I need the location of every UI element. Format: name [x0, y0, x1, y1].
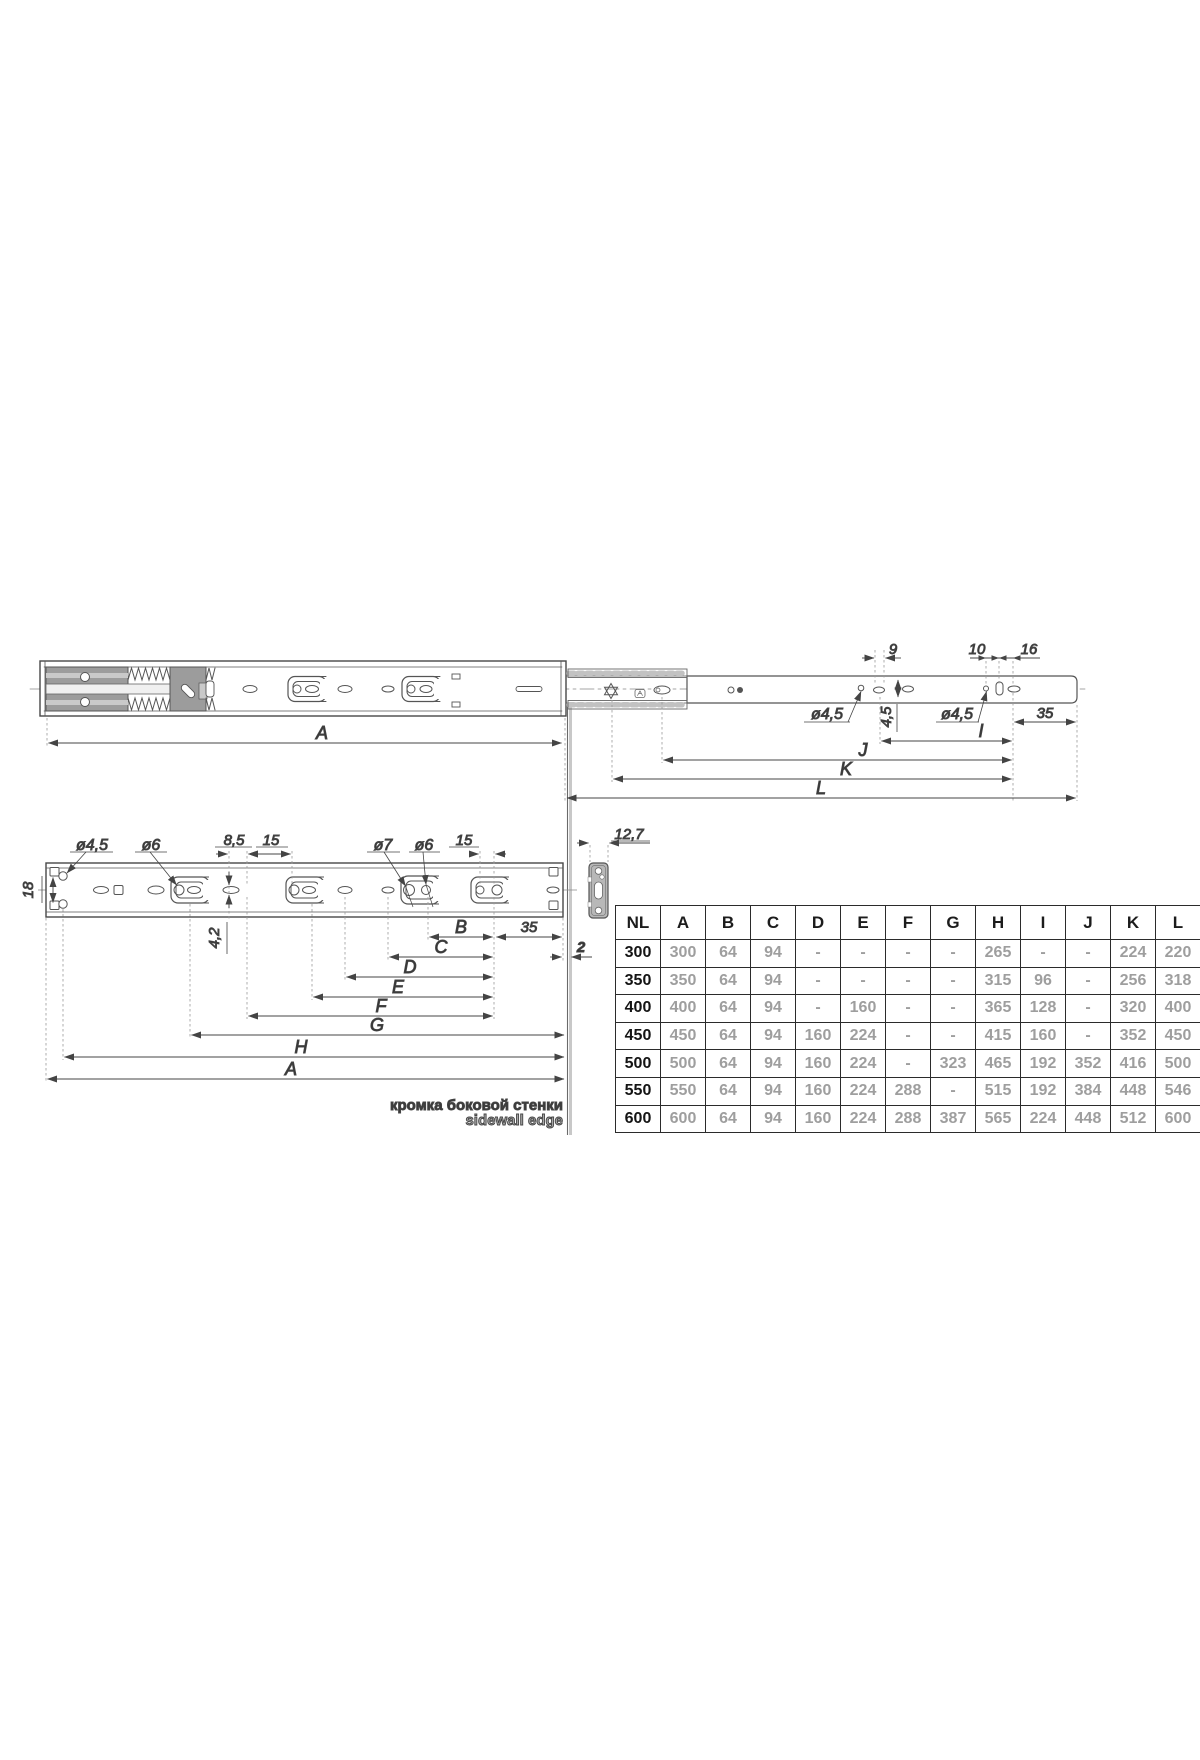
dim-label-dia45-side: ø4,5 — [76, 837, 108, 854]
value-cell: - — [931, 995, 976, 1023]
value-cell: 415 — [976, 1022, 1021, 1050]
value-cell: 323 — [931, 1050, 976, 1078]
value-cell: - — [1066, 967, 1111, 995]
column-header: B — [706, 906, 751, 940]
column-header: C — [751, 906, 796, 940]
value-cell: 96 — [1021, 967, 1066, 995]
value-cell: 128 — [1021, 995, 1066, 1023]
value-cell: - — [796, 995, 841, 1023]
column-header: E — [841, 906, 886, 940]
column-header: K — [1111, 906, 1156, 940]
value-cell: 224 — [841, 1077, 886, 1105]
table-row: 6006006494160224288387565224448512600 — [616, 1105, 1200, 1133]
value-cell: 352 — [1111, 1022, 1156, 1050]
value-cell: - — [1066, 1022, 1111, 1050]
top-view-drawing — [30, 661, 1085, 716]
note-sidewall-en: sidewall edge — [465, 1112, 563, 1129]
dim-label-35-side: 35 — [521, 919, 538, 936]
nl-cell: 350 — [616, 967, 661, 995]
value-cell: 94 — [751, 940, 796, 968]
value-cell: 64 — [706, 1022, 751, 1050]
dim-label-A-side: A — [284, 1059, 297, 1079]
value-cell: 192 — [1021, 1077, 1066, 1105]
value-cell: 315 — [976, 967, 1021, 995]
dim-label-C: C — [435, 937, 449, 957]
value-cell: 500 — [1156, 1050, 1200, 1078]
value-cell: 64 — [706, 940, 751, 968]
value-cell: 318 — [1156, 967, 1200, 995]
value-cell: 160 — [796, 1105, 841, 1133]
value-cell: - — [886, 1050, 931, 1078]
value-cell: 500 — [661, 1050, 706, 1078]
value-cell: 94 — [751, 1022, 796, 1050]
table-row: 4504506494160224--415160-352450 — [616, 1022, 1200, 1050]
nl-cell: 400 — [616, 995, 661, 1023]
column-header: D — [796, 906, 841, 940]
dim-label-15-right: 15 — [456, 832, 473, 849]
value-cell: 64 — [706, 1050, 751, 1078]
value-cell: 64 — [706, 1077, 751, 1105]
value-cell: 220 — [1156, 940, 1200, 968]
dim-label-H: H — [295, 1037, 309, 1057]
value-cell: 400 — [1156, 995, 1200, 1023]
value-cell: 350 — [661, 967, 706, 995]
value-cell: 565 — [976, 1105, 1021, 1133]
column-header: A — [661, 906, 706, 940]
value-cell: - — [931, 1022, 976, 1050]
column-header: H — [976, 906, 1021, 940]
column-header: G — [931, 906, 976, 940]
value-cell: - — [886, 940, 931, 968]
value-cell: - — [931, 967, 976, 995]
dim-label-dia45-mid: ø4,5 — [811, 706, 843, 723]
value-cell: 450 — [1156, 1022, 1200, 1050]
value-cell: 600 — [1156, 1105, 1200, 1133]
value-cell: 515 — [976, 1077, 1021, 1105]
technical-drawing: 9 10 16 ø4,5 4,5 ø4,5 35 I J K L A — [0, 0, 1200, 1760]
value-cell: 160 — [1021, 1022, 1066, 1050]
dim-label-2: 2 — [576, 939, 586, 956]
dim-label-dia45-right: ø4,5 — [941, 706, 973, 723]
cross-section — [588, 863, 608, 918]
dim-label-B: B — [455, 917, 467, 937]
value-cell: 265 — [976, 940, 1021, 968]
dim-label-E: E — [392, 977, 405, 997]
table-header-row: NLABCDEFGHIJKL — [616, 906, 1200, 940]
value-cell: - — [796, 967, 841, 995]
dim-label-F: F — [376, 996, 388, 1016]
value-cell: 300 — [661, 940, 706, 968]
value-cell: 94 — [751, 1050, 796, 1078]
value-cell: 320 — [1111, 995, 1156, 1023]
dim-label-A-top: A — [315, 723, 328, 743]
value-cell: 160 — [796, 1050, 841, 1078]
value-cell: 600 — [661, 1105, 706, 1133]
value-cell: 64 — [706, 1105, 751, 1133]
nl-cell: 500 — [616, 1050, 661, 1078]
sidewall-edge-line — [568, 703, 571, 1135]
dim-label-K: K — [840, 759, 853, 779]
column-header: L — [1156, 906, 1200, 940]
dim-label-16: 16 — [1021, 641, 1038, 658]
nl-cell: 450 — [616, 1022, 661, 1050]
dim-label-dia6-left: ø6 — [142, 837, 161, 854]
value-cell: 160 — [796, 1022, 841, 1050]
nl-cell: 550 — [616, 1077, 661, 1105]
value-cell: - — [931, 1077, 976, 1105]
value-cell: 448 — [1066, 1105, 1111, 1133]
value-cell: 224 — [1111, 940, 1156, 968]
value-cell: - — [796, 940, 841, 968]
dim-label-I: I — [978, 721, 983, 741]
column-header: NL — [616, 906, 661, 940]
table-row: 4004006494-160--365128-320400 — [616, 995, 1200, 1023]
dim-label-10: 10 — [969, 641, 986, 658]
side-view-drawing — [38, 863, 578, 917]
dim-label-35-top: 35 — [1037, 705, 1054, 722]
value-cell: 192 — [1021, 1050, 1066, 1078]
dimensions-table: NLABCDEFGHIJKL 3003006494----265--224220… — [615, 905, 1200, 1133]
value-cell: - — [886, 967, 931, 995]
value-cell: 224 — [841, 1050, 886, 1078]
value-cell: 224 — [1021, 1105, 1066, 1133]
nl-cell: 600 — [616, 1105, 661, 1133]
nl-cell: 300 — [616, 940, 661, 968]
column-header: F — [886, 906, 931, 940]
dim-label-dia6-right: ø6 — [415, 837, 434, 854]
value-cell: - — [1066, 940, 1111, 968]
dim-label-D: D — [404, 957, 417, 977]
value-cell: 416 — [1111, 1050, 1156, 1078]
value-cell: 256 — [1111, 967, 1156, 995]
value-cell: 384 — [1066, 1077, 1111, 1105]
column-header: I — [1021, 906, 1066, 940]
dim-label-18: 18 — [20, 881, 37, 898]
dim-label-42: 4,2 — [206, 927, 223, 949]
value-cell: 288 — [886, 1077, 931, 1105]
value-cell: 465 — [976, 1050, 1021, 1078]
table-row: 5505506494160224288-515192384448546 — [616, 1077, 1200, 1105]
value-cell: 448 — [1111, 1077, 1156, 1105]
dim-label-9: 9 — [889, 641, 898, 658]
value-cell: 450 — [661, 1022, 706, 1050]
value-cell: 512 — [1111, 1105, 1156, 1133]
value-cell: 94 — [751, 967, 796, 995]
value-cell: 550 — [661, 1077, 706, 1105]
dim-label-dia7: ø7 — [374, 837, 394, 854]
value-cell: 64 — [706, 967, 751, 995]
value-cell: - — [931, 940, 976, 968]
dim-label-127: 12,7 — [614, 826, 644, 843]
value-cell: 352 — [1066, 1050, 1111, 1078]
dim-label-L: L — [816, 778, 826, 798]
value-cell: - — [841, 940, 886, 968]
value-cell: 387 — [931, 1105, 976, 1133]
value-cell: 94 — [751, 1105, 796, 1133]
dim-label-85: 8,5 — [224, 832, 246, 849]
value-cell: - — [841, 967, 886, 995]
drawing-page: 9 10 16 ø4,5 4,5 ø4,5 35 I J K L A — [0, 0, 1200, 1760]
column-header: J — [1066, 906, 1111, 940]
value-cell: 224 — [841, 1105, 886, 1133]
value-cell: 160 — [796, 1077, 841, 1105]
value-cell: 365 — [976, 995, 1021, 1023]
value-cell: 224 — [841, 1022, 886, 1050]
dim-label-G: G — [370, 1015, 384, 1035]
value-cell: 288 — [886, 1105, 931, 1133]
value-cell: 94 — [751, 995, 796, 1023]
value-cell: - — [1021, 940, 1066, 968]
value-cell: 546 — [1156, 1077, 1200, 1105]
value-cell: - — [1066, 995, 1111, 1023]
dim-label-45-offset: 4,5 — [878, 706, 895, 728]
value-cell: 400 — [661, 995, 706, 1023]
value-cell: 64 — [706, 995, 751, 1023]
table-row: 3003006494----265--224220 — [616, 940, 1200, 968]
table-row: 5005006494160224-323465192352416500 — [616, 1050, 1200, 1078]
dim-label-J: J — [858, 740, 869, 760]
table-row: 3503506494----31596-256318 — [616, 967, 1200, 995]
dim-label-15-left: 15 — [263, 832, 280, 849]
value-cell: 160 — [841, 995, 886, 1023]
value-cell: 94 — [751, 1077, 796, 1105]
value-cell: - — [886, 1022, 931, 1050]
value-cell: - — [886, 995, 931, 1023]
